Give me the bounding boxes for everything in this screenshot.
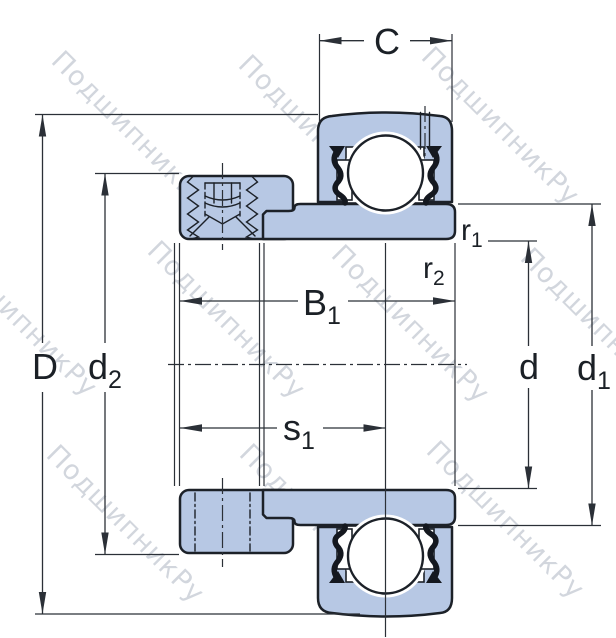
label-B1: B1 <box>303 282 341 330</box>
label-r2: r2 <box>423 252 445 290</box>
bearing-half-section-mirrored <box>180 490 455 617</box>
ball <box>348 136 423 211</box>
watermark: ПодшипникРу <box>141 235 312 406</box>
dimension-s1: s1 <box>180 407 386 455</box>
bearing-technical-drawing: ПодшипникРу ПодшипникРу ПодшипникРу Подш… <box>0 0 616 638</box>
dimension-d1: d1 <box>577 204 611 526</box>
label-r1: r1 <box>461 214 483 252</box>
label-s1: s1 <box>283 407 315 455</box>
label-C: C <box>374 21 400 62</box>
dimension-D: D <box>32 115 58 615</box>
watermark: ПодшипникРу <box>325 239 496 410</box>
bearing-half-section <box>180 113 455 240</box>
bearing-drawing-page: ПодшипникРу ПодшипникРу ПодшипникРу Подш… <box>0 0 616 638</box>
label-d: d <box>519 346 539 387</box>
label-d2: d2 <box>88 346 122 394</box>
label-D: D <box>32 346 58 387</box>
